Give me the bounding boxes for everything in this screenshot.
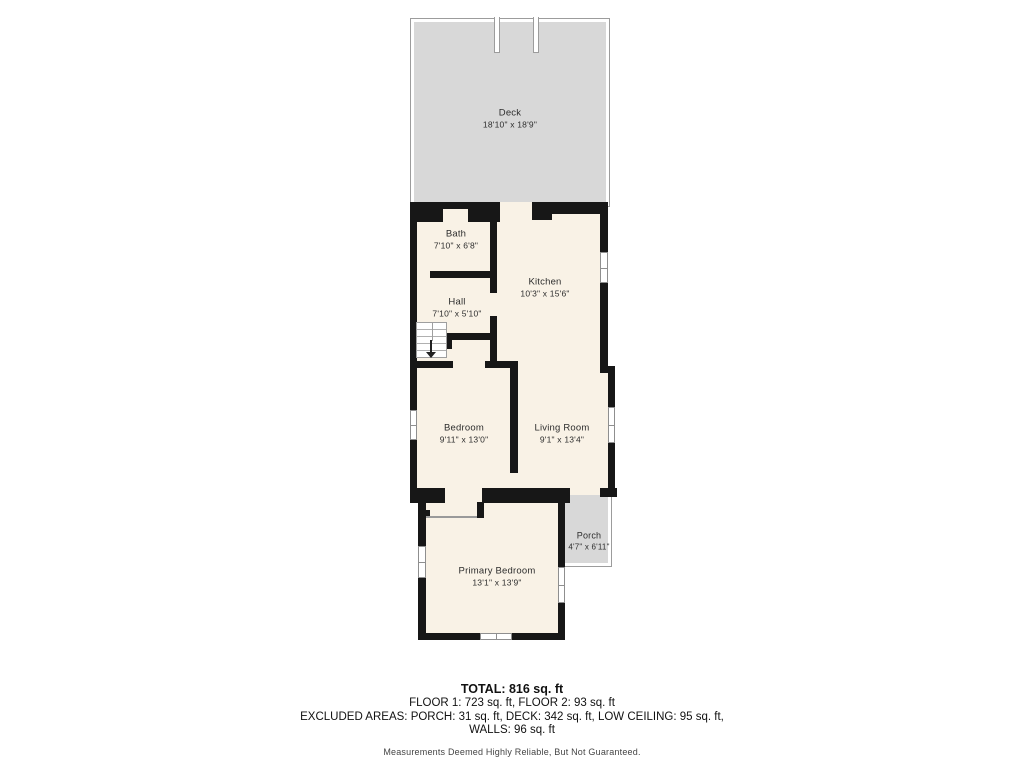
room-label-bedroom: Bedroom 9'11" x 13'0"	[440, 423, 489, 446]
wall-segment	[410, 488, 445, 503]
room-name: Bedroom	[440, 423, 489, 435]
room-dimensions: 18'10" x 18'9"	[483, 120, 537, 131]
deck-rail-slot	[494, 17, 500, 53]
disclaimer-text: Measurements Deemed Highly Reliable, But…	[0, 747, 1024, 757]
room-label-hall: Hall 7'10" x 5'10"	[432, 297, 481, 320]
room-name: Living Room	[534, 423, 589, 435]
wall-segment	[600, 202, 608, 373]
room-name: Porch	[568, 530, 609, 542]
excluded-areas-text-line1: EXCLUDED AREAS: PORCH: 31 sq. ft, DECK: …	[0, 711, 1024, 725]
room-label-kitchen: Kitchen 10'3" x 15'6"	[520, 277, 569, 300]
floor-areas-text: FLOOR 1: 723 sq. ft, FLOOR 2: 93 sq. ft	[0, 697, 1024, 711]
room-name: Deck	[483, 108, 537, 120]
stairs-down-arrowhead-icon	[426, 352, 436, 358]
deck-rail-slot	[533, 17, 539, 53]
wall-segment	[510, 361, 518, 473]
room-label-porch: Porch 4'7" x 6'11"	[568, 530, 609, 553]
window-symbol	[558, 567, 565, 603]
room-dimensions: 13'1" x 13'9"	[459, 578, 536, 589]
room-name: Bath	[434, 229, 478, 241]
window-symbol	[480, 633, 512, 640]
stairs-divider-line	[432, 323, 433, 341]
room-dimensions: 10'3" x 15'6"	[520, 289, 569, 300]
room-name: Kitchen	[520, 277, 569, 289]
room-dimensions: 7'10" x 5'10"	[432, 309, 481, 320]
total-area-text: TOTAL: 816 sq. ft	[0, 682, 1024, 697]
wall-segment	[490, 222, 497, 293]
room-name: Hall	[432, 297, 481, 309]
wall-stub	[477, 502, 484, 518]
floor-plan: Deck 18'10" x 18'9" Bath 7'10" x 6'8" Ki…	[0, 0, 1024, 768]
wall-segment	[482, 488, 570, 503]
wall-segment	[600, 488, 617, 497]
wall-segment	[410, 361, 453, 368]
room-dimensions: 7'10" x 6'8"	[434, 241, 478, 252]
window-symbol	[410, 410, 417, 440]
window-symbol	[608, 407, 615, 443]
room-label-bath: Bath 7'10" x 6'8"	[434, 229, 478, 252]
room-dimensions: 9'1" x 13'4"	[534, 435, 589, 446]
wall-segment	[430, 271, 497, 278]
stairs	[416, 322, 447, 358]
window-symbol	[418, 546, 426, 578]
room-label-living-room: Living Room 9'1" x 13'4"	[534, 423, 589, 446]
low-ceiling-divider-line	[426, 516, 477, 518]
room-dimensions: 9'11" x 13'0"	[440, 435, 489, 446]
excluded-areas-text-line2: WALLS: 96 sq. ft	[0, 724, 1024, 738]
window-symbol	[600, 252, 608, 283]
bath-wall-recess	[443, 209, 468, 222]
wall-segment	[532, 202, 552, 220]
room-label-deck: Deck 18'10" x 18'9"	[483, 108, 537, 131]
room-dimensions: 4'7" x 6'11"	[568, 542, 609, 553]
room-label-primary-bedroom: Primary Bedroom 13'1" x 13'9"	[459, 566, 536, 589]
area-summary: TOTAL: 816 sq. ft FLOOR 1: 723 sq. ft, F…	[0, 682, 1024, 757]
room-name: Primary Bedroom	[459, 566, 536, 578]
wall-segment	[445, 333, 497, 340]
